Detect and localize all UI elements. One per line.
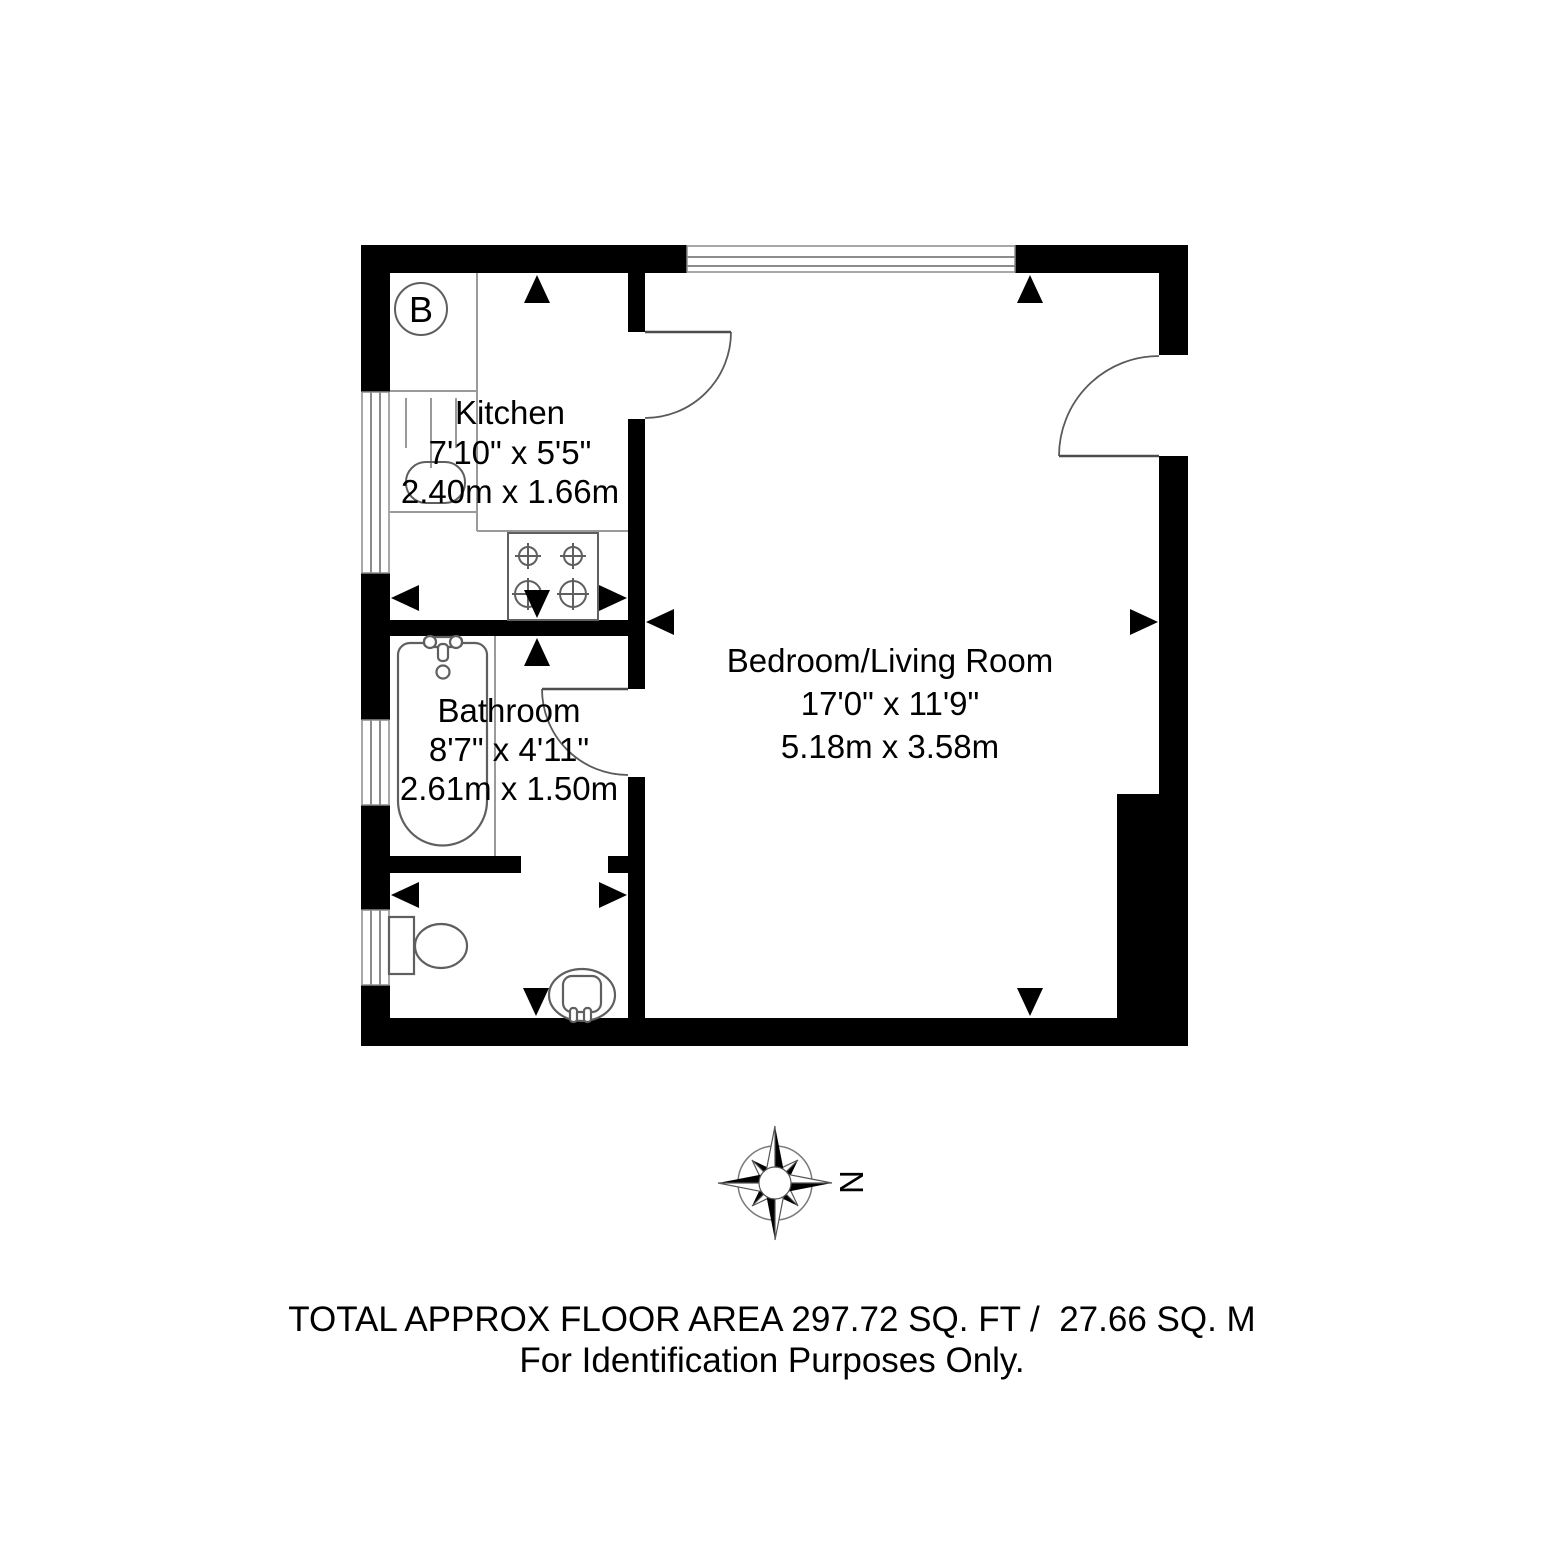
window-kitchen-left (362, 392, 389, 573)
kitchen-imperial: 7'10" x 5'5" (429, 434, 592, 471)
wall-right-mid (1159, 456, 1188, 794)
bathroom-metric: 2.61m x 1.50m (400, 770, 618, 807)
wall-top-left (361, 245, 687, 273)
wall-interior-stub-top (628, 273, 645, 332)
bedroom-label: Bedroom/Living Room 17'0" x 11'9" 5.18m … (727, 642, 1054, 765)
boiler-label: B (409, 289, 433, 330)
arrow-left-bathroom (391, 882, 419, 908)
wall-right-lower-thick (1117, 794, 1188, 1046)
arrow-left-kitchen (391, 585, 419, 611)
compass-north-label: N (833, 1170, 870, 1194)
compass-rose: N (718, 1126, 870, 1240)
bathroom-name: Bathroom (437, 692, 580, 729)
basin-tap (570, 1008, 577, 1022)
arrow-right-bathroom (599, 882, 627, 908)
wall-right-upper (1159, 245, 1188, 355)
hob (508, 533, 598, 620)
wash-basin (549, 969, 615, 1022)
wall-bathroom-wc-divider-left (385, 856, 521, 873)
footer-disclaimer: For Identification Purposes Only. (519, 1341, 1024, 1380)
arrow-down-bedroom (1017, 988, 1043, 1016)
bathtub-drain (437, 666, 450, 679)
room-labels: Kitchen 7'10" x 5'5" 2.40m x 1.66m Bathr… (400, 394, 1053, 807)
arrow-left-bedroom (646, 609, 674, 635)
bathroom-imperial: 8'7" x 4'11" (429, 731, 589, 768)
arrow-up-bedroom (1017, 275, 1043, 303)
kitchen-metric: 2.40m x 1.66m (401, 473, 619, 510)
wall-left-1 (361, 245, 390, 392)
wall-left-2 (361, 573, 390, 720)
kitchen-label: Kitchen 7'10" x 5'5" 2.40m x 1.66m (401, 394, 619, 510)
arrow-right-kitchen (599, 585, 627, 611)
wall-interior-bottom (628, 777, 645, 1018)
arrow-up-kitchen (524, 275, 550, 303)
wall-bathroom-wc-divider-right (608, 856, 645, 873)
window-bedroom-top (687, 246, 1015, 272)
entrance-door (1059, 356, 1159, 456)
arrow-right-bedroom (1130, 609, 1158, 635)
wall-bottom (361, 1018, 1188, 1046)
bedroom-metric: 5.18m x 3.58m (781, 728, 999, 765)
compass-center (759, 1167, 791, 1199)
bedroom-name: Bedroom/Living Room (727, 642, 1054, 679)
wall-interior-mid (628, 419, 645, 689)
floorplan-page: B (0, 0, 1550, 1550)
toilet-cistern (389, 917, 414, 974)
kitchen-door (645, 332, 731, 418)
window-bathroom-left (362, 720, 389, 805)
floorplan-drawing: B (0, 0, 1550, 1550)
footer: TOTAL APPROX FLOOR AREA 297.72 SQ. FT / … (288, 1300, 1255, 1380)
arrow-up-bathroom (524, 638, 550, 666)
kitchen-name: Kitchen (455, 394, 565, 431)
toilet (389, 917, 467, 974)
arrow-down-bathroom (523, 988, 549, 1016)
window-wc-left (362, 910, 389, 985)
footer-floor-area: TOTAL APPROX FLOOR AREA 297.72 SQ. FT / … (288, 1300, 1255, 1339)
toilet-bowl (415, 924, 467, 968)
bedroom-imperial: 17'0" x 11'9" (801, 685, 980, 722)
basin-tap (584, 1008, 591, 1022)
wall-kitchen-bathroom-divider (385, 620, 645, 636)
windows (362, 246, 1015, 985)
